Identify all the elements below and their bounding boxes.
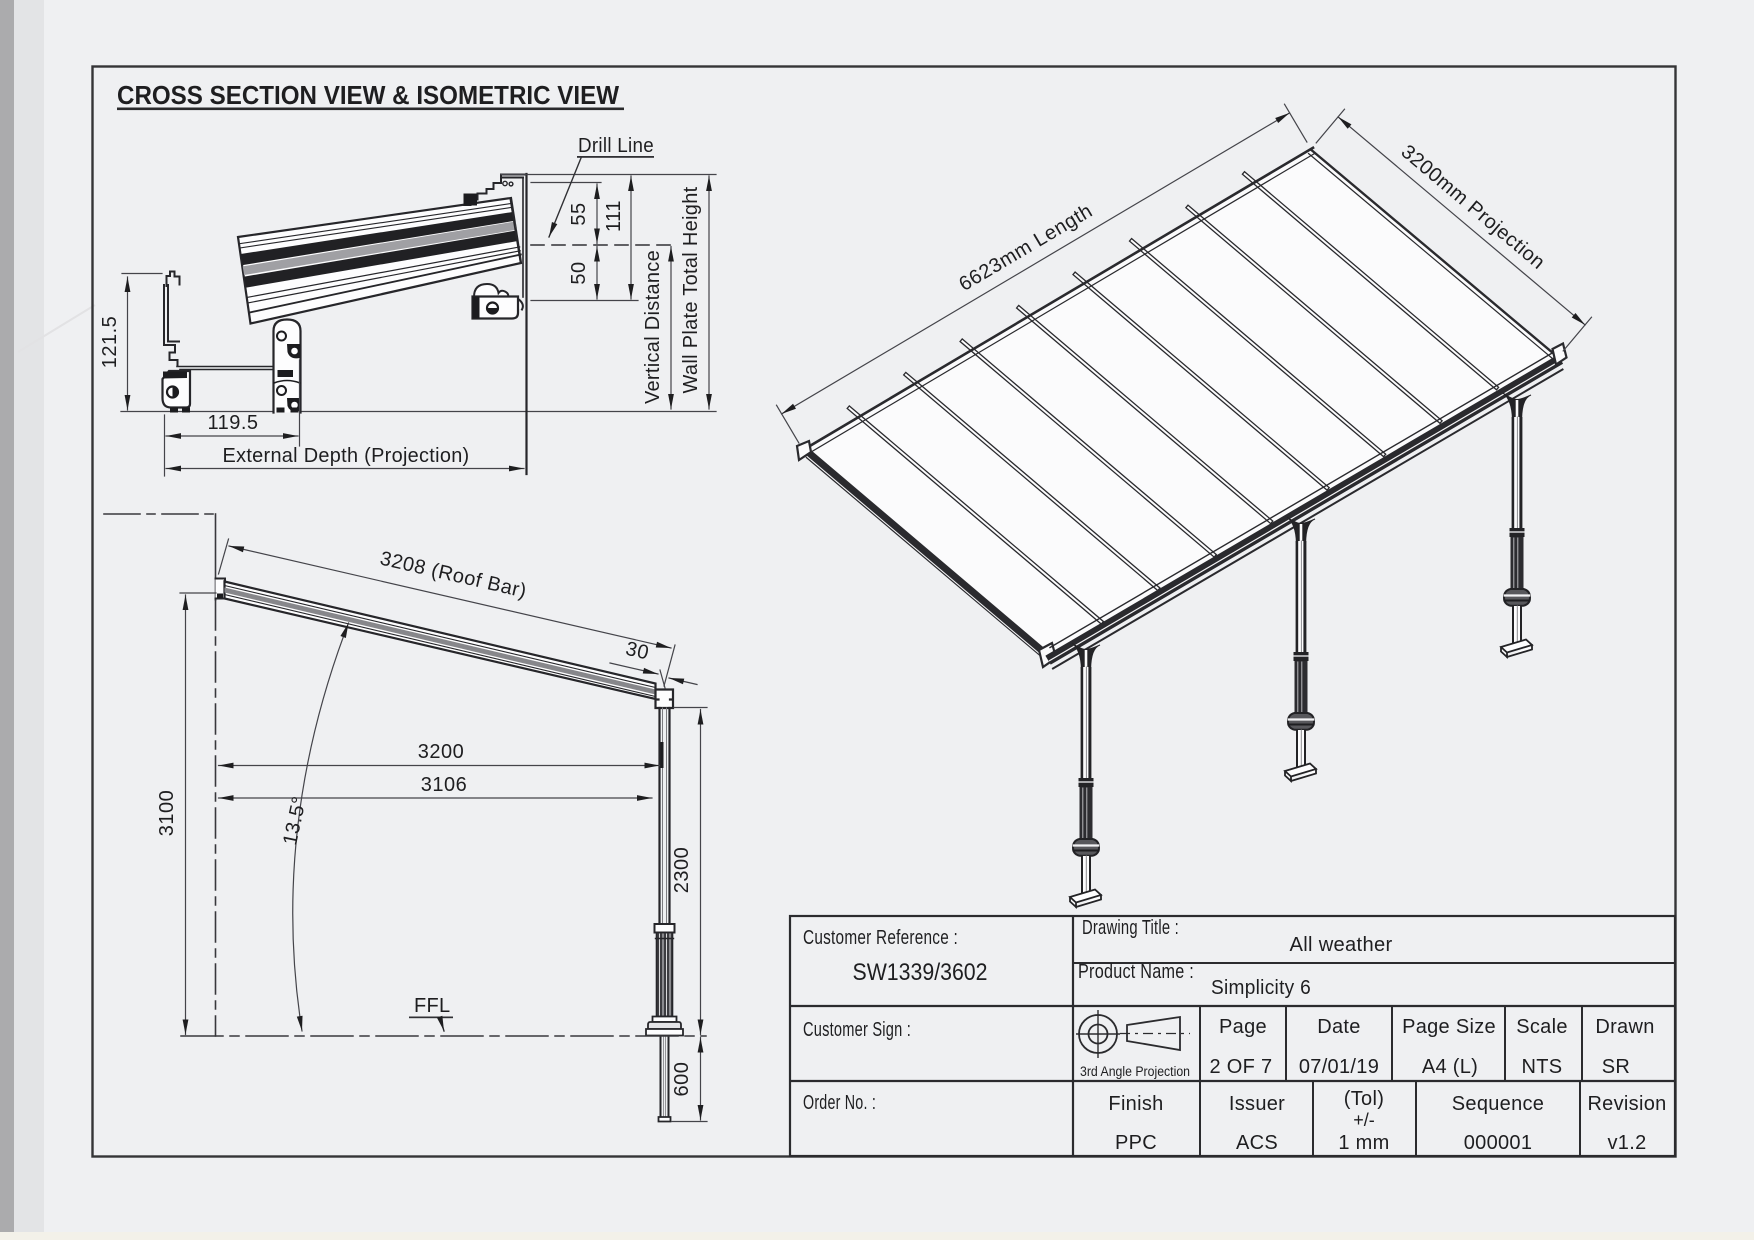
svg-text:Customer Reference :: Customer Reference : xyxy=(803,927,958,949)
svg-text:3rd Angle Projection: 3rd Angle Projection xyxy=(1080,1064,1190,1079)
svg-text:Date: Date xyxy=(1317,1016,1360,1038)
svg-text:600: 600 xyxy=(671,1062,693,1097)
svg-text:NTS: NTS xyxy=(1522,1056,1563,1078)
svg-text:Page Size: Page Size xyxy=(1402,1016,1496,1038)
svg-text:Order No. :: Order No. : xyxy=(803,1092,876,1114)
svg-text:Scale: Scale xyxy=(1516,1016,1568,1038)
svg-text:Simplicity 6: Simplicity 6 xyxy=(1211,977,1311,999)
svg-text:119.5: 119.5 xyxy=(207,412,258,434)
svg-text:Wall Plate Total Height: Wall Plate Total Height xyxy=(680,186,702,393)
svg-text:1 mm: 1 mm xyxy=(1338,1132,1389,1154)
svg-text:Drawn: Drawn xyxy=(1595,1016,1654,1038)
svg-text:2 OF 7: 2 OF 7 xyxy=(1210,1056,1273,1078)
svg-text:External Depth (Projection): External Depth (Projection) xyxy=(223,445,470,467)
svg-text:07/01/19: 07/01/19 xyxy=(1299,1056,1379,1078)
svg-text:Drill Line: Drill Line xyxy=(578,135,654,157)
svg-text:(Tol): (Tol) xyxy=(1344,1088,1384,1110)
svg-text:55: 55 xyxy=(568,202,590,225)
svg-text:Sequence: Sequence xyxy=(1452,1093,1544,1115)
svg-text:SW1339/3602: SW1339/3602 xyxy=(853,959,988,986)
svg-text:All weather: All weather xyxy=(1290,934,1393,956)
svg-text:3200: 3200 xyxy=(418,741,465,763)
svg-text:+/-: +/- xyxy=(1353,1110,1375,1130)
svg-text:Page: Page xyxy=(1219,1016,1267,1038)
svg-text:121.5: 121.5 xyxy=(99,316,121,369)
svg-text:2300: 2300 xyxy=(671,847,693,894)
svg-text:Vertical Distance: Vertical Distance xyxy=(642,250,664,404)
svg-text:50: 50 xyxy=(568,261,590,284)
svg-text:3100: 3100 xyxy=(156,790,178,837)
svg-text:v1.2: v1.2 xyxy=(1607,1132,1646,1154)
svg-text:Revision: Revision xyxy=(1587,1093,1666,1115)
svg-text:PPC: PPC xyxy=(1115,1132,1157,1154)
svg-text:000001: 000001 xyxy=(1464,1132,1533,1154)
svg-text:111: 111 xyxy=(603,200,625,232)
svg-text:A4 (L): A4 (L) xyxy=(1422,1056,1478,1078)
svg-text:Issuer: Issuer xyxy=(1229,1093,1285,1115)
svg-text:Finish: Finish xyxy=(1108,1093,1163,1115)
svg-text:Customer Sign :: Customer Sign : xyxy=(803,1019,911,1041)
svg-text:Product Name :: Product Name : xyxy=(1078,961,1194,983)
svg-text:FFL: FFL xyxy=(414,995,450,1017)
svg-text:ACS: ACS xyxy=(1236,1132,1278,1154)
svg-text:CROSS SECTION VIEW & ISOMETRIC: CROSS SECTION VIEW & ISOMETRIC VIEW xyxy=(117,80,619,110)
svg-text:3106: 3106 xyxy=(421,774,468,796)
svg-text:SR: SR xyxy=(1602,1056,1630,1078)
svg-text:Drawing Title :: Drawing Title : xyxy=(1082,917,1179,939)
